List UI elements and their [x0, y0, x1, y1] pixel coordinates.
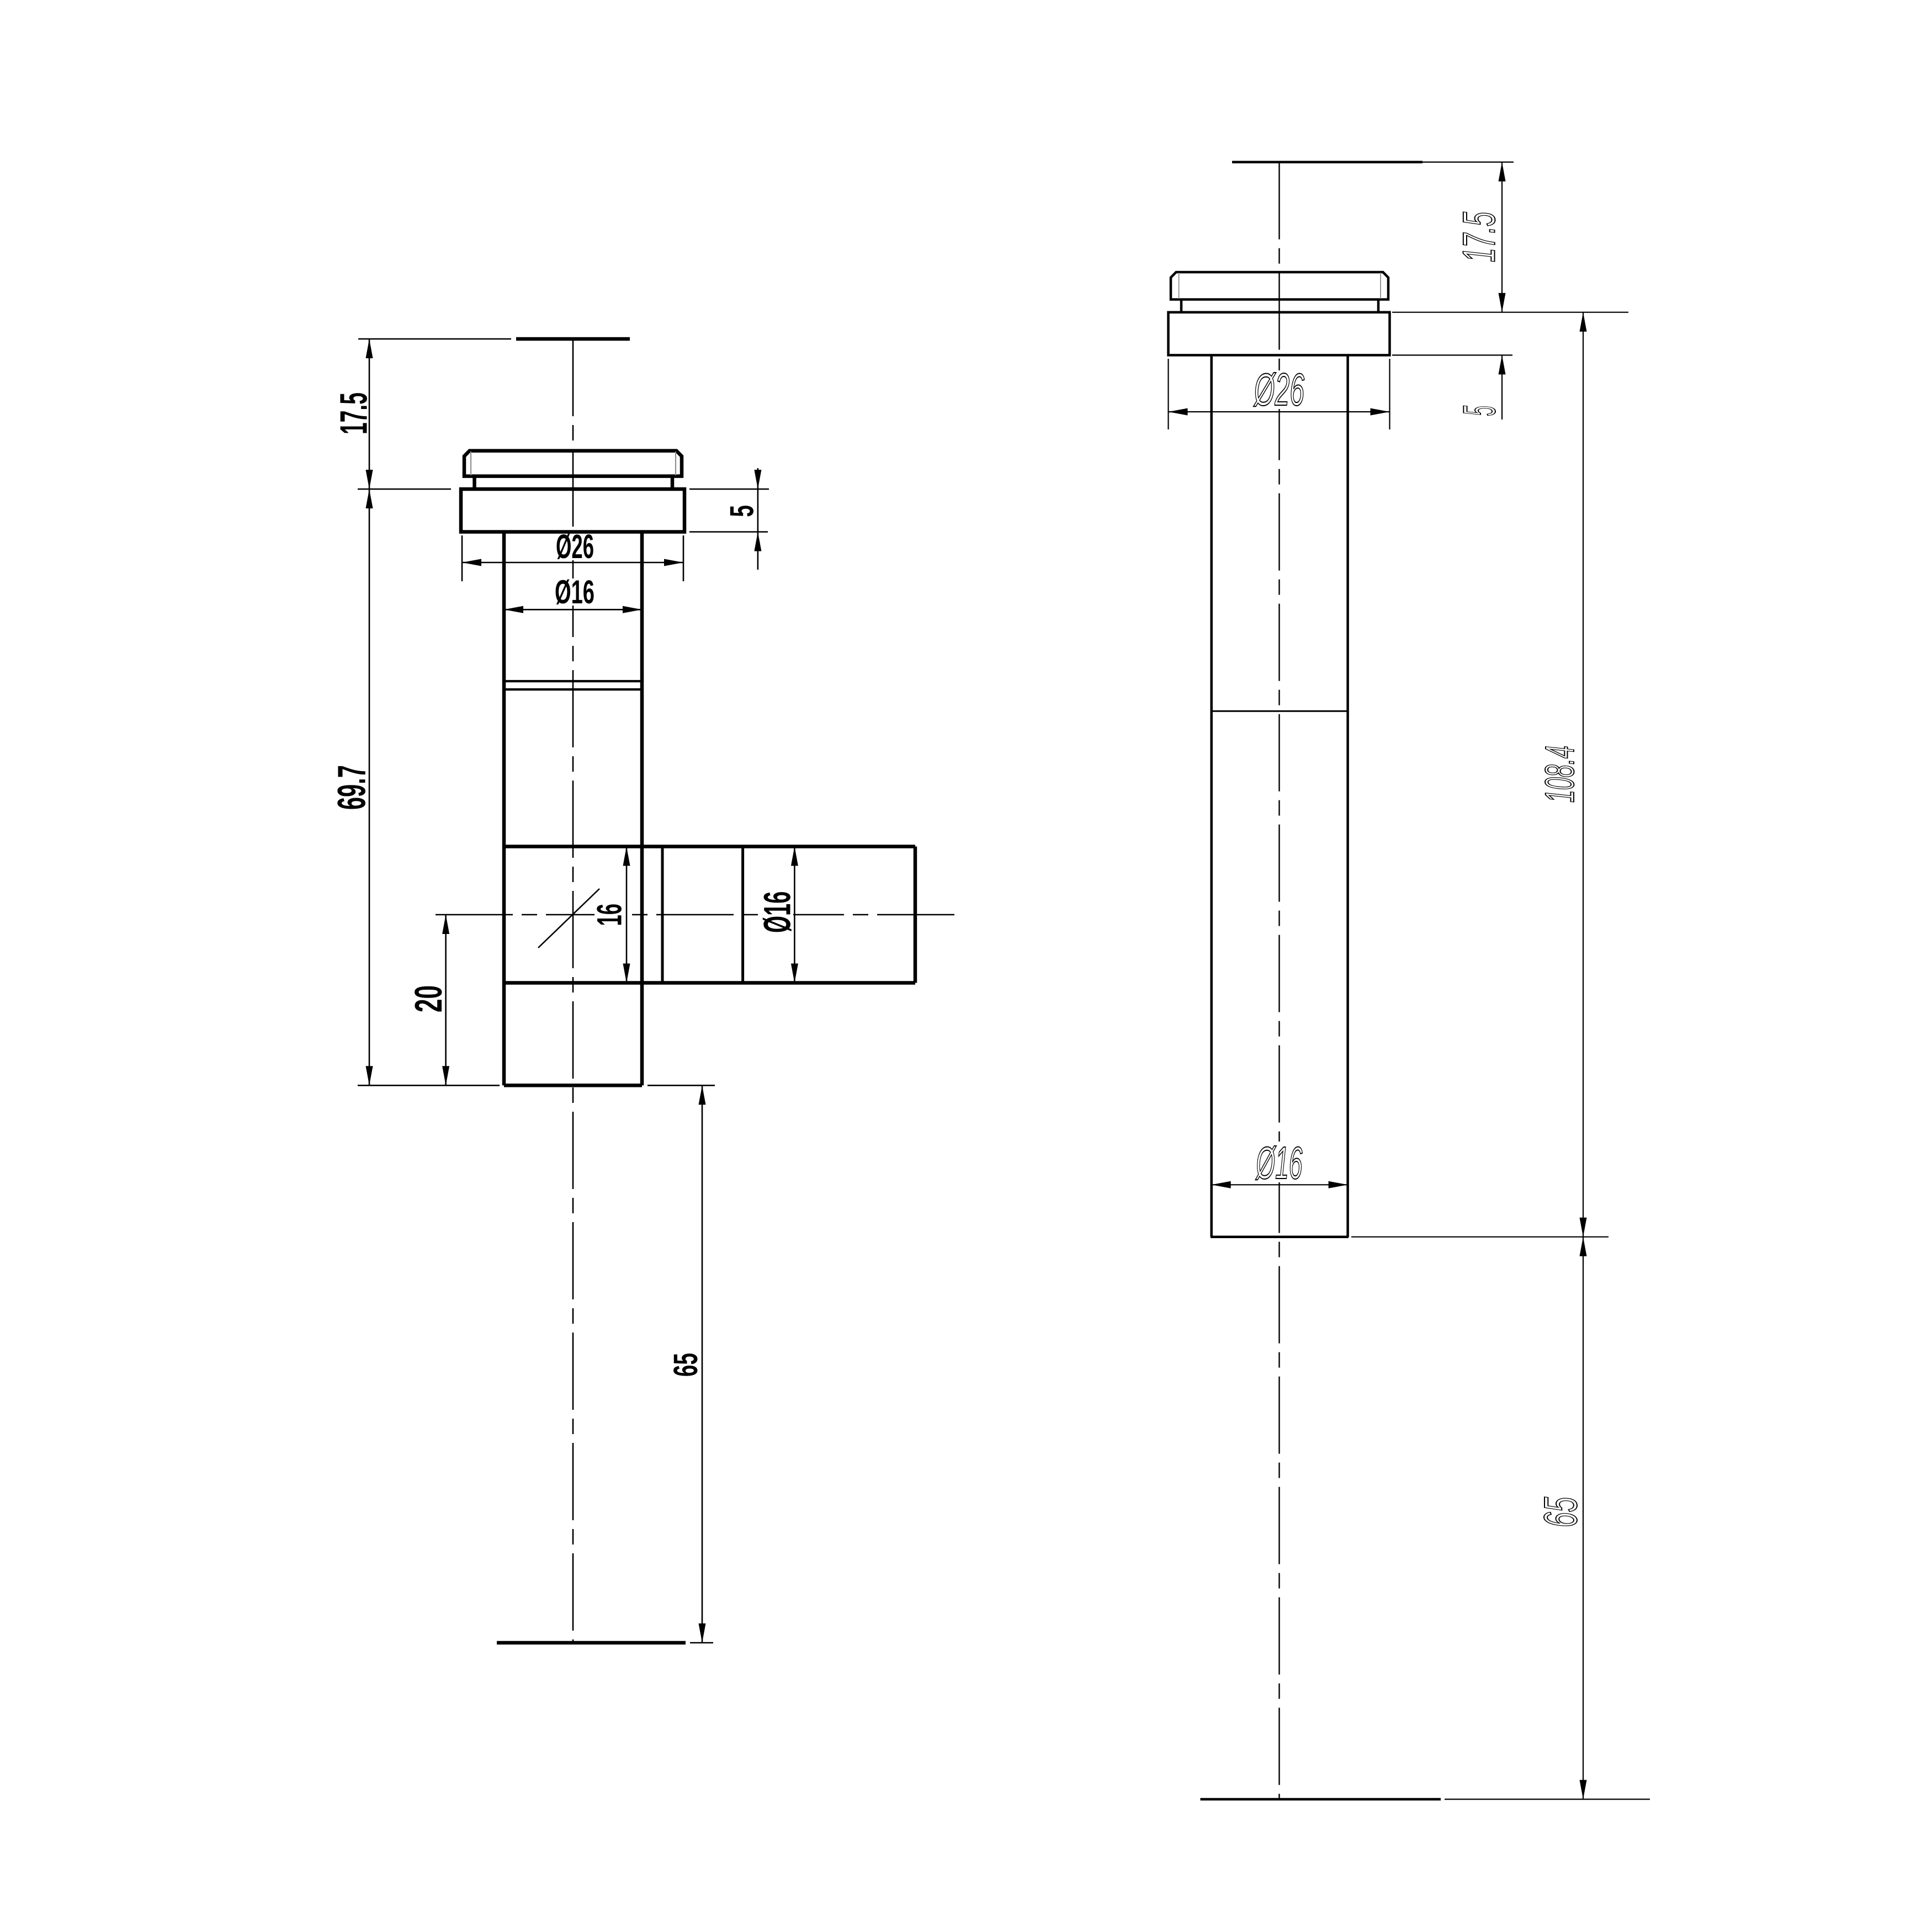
- svg-text:Ø26: Ø26: [1253, 364, 1304, 415]
- svg-text:69.7: 69.7: [331, 765, 374, 810]
- svg-text:108.4: 108.4: [1537, 746, 1583, 803]
- svg-text:17.5: 17.5: [1453, 212, 1505, 262]
- svg-text:5: 5: [1453, 406, 1505, 416]
- svg-text:5: 5: [724, 505, 761, 517]
- svg-text:20: 20: [407, 985, 450, 1012]
- svg-text:17.5: 17.5: [332, 392, 375, 434]
- svg-text:Ø16: Ø16: [1255, 1137, 1303, 1188]
- svg-text:65: 65: [667, 1353, 704, 1377]
- svg-text:Ø16: Ø16: [756, 891, 799, 933]
- svg-text:16: 16: [591, 904, 629, 926]
- svg-text:Ø16: Ø16: [555, 574, 595, 611]
- svg-text:Ø26: Ø26: [556, 528, 594, 565]
- svg-text:65: 65: [1535, 1497, 1586, 1527]
